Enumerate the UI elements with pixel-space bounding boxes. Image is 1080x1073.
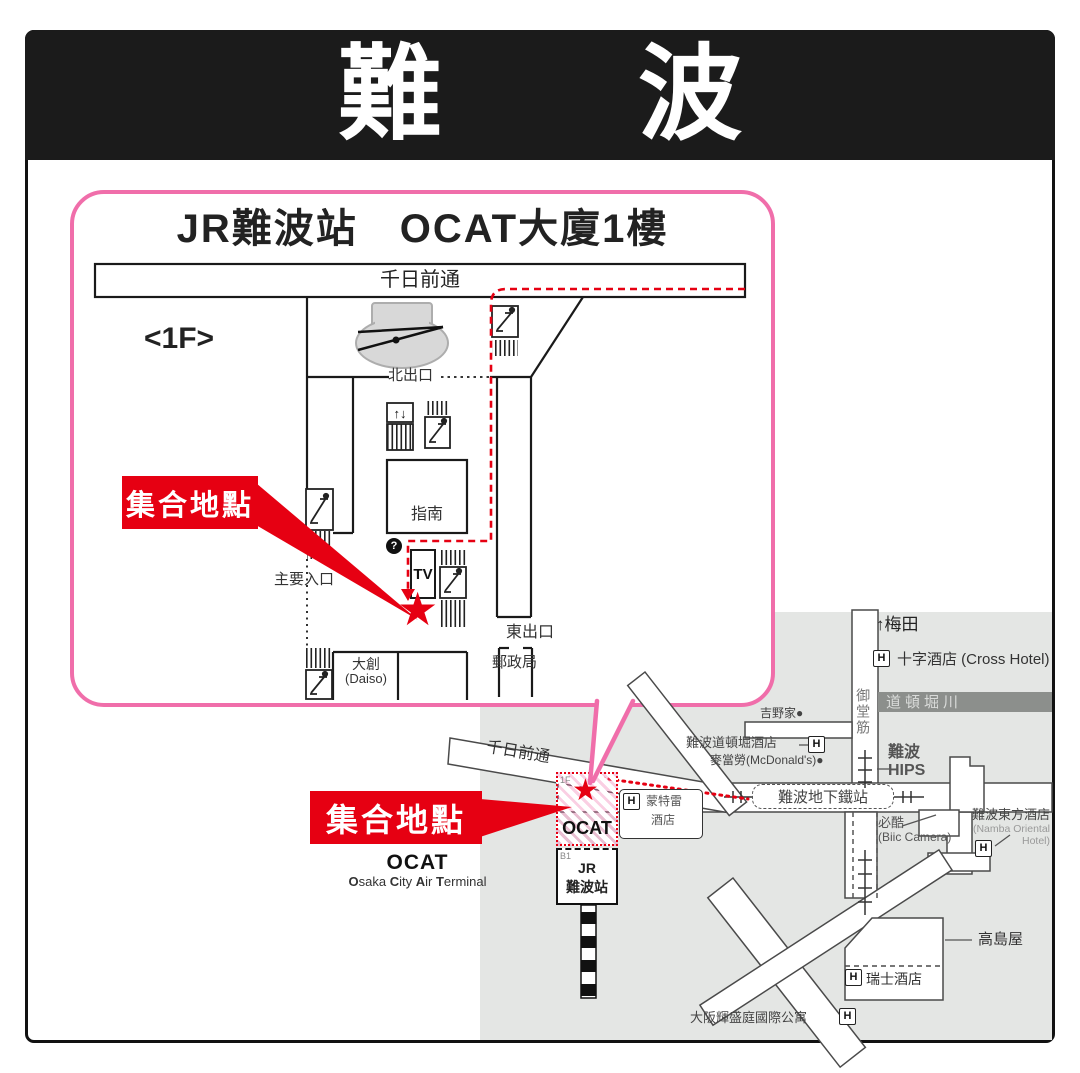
- meeting-point-banner-floorplan: 集合地點: [122, 476, 258, 529]
- north-exit-label: 北出口: [388, 367, 433, 384]
- ocat-en-part: O: [348, 874, 358, 889]
- ocat-caption-title: OCAT: [330, 851, 505, 875]
- ocat-en-part: T: [436, 874, 444, 889]
- takashimaya-label: 高島屋: [978, 931, 1023, 948]
- ocat-block-label: OCAT: [558, 818, 616, 839]
- jr-namba-station-box: B1 JR 難波站: [556, 848, 618, 905]
- meeting-point-star-icon: ★: [397, 586, 438, 632]
- dotonbori-river-label: 道頓堀川: [886, 694, 962, 711]
- ocat-caption: OCAT Osaka City Air Terminal: [330, 851, 505, 890]
- monterey-l1: 蒙特雷: [646, 795, 682, 809]
- daiso-label: 大創 (Daiso): [336, 656, 396, 687]
- tv-label: TV: [410, 566, 436, 583]
- ocat-en-part: erminal: [444, 874, 487, 889]
- jr-label-line2: 難波站: [558, 879, 616, 895]
- post-office-label: 郵政局: [492, 654, 537, 671]
- ocat-en-part: C: [390, 874, 399, 889]
- yoshinoya-label: 吉野家●: [760, 707, 803, 721]
- title-band: 難 波: [25, 30, 1055, 160]
- page-title-char-right: 波: [638, 43, 742, 147]
- meeting-point-banner-map: 集合地點: [310, 791, 482, 844]
- midosuji-street-label: 御堂筋: [855, 688, 871, 736]
- daiso-label-zh: 大創: [336, 656, 396, 672]
- cross-hotel-label: 十字酒店 (Cross Hotel): [897, 651, 1050, 668]
- namba-map-sheet: 難 波: [0, 0, 1080, 1073]
- oriental-zh: 難波東方酒店: [964, 808, 1050, 823]
- floorplan-title: JR難波站 OCAT大廈1樓: [90, 206, 755, 252]
- namba-hips-en: HIPS: [888, 762, 925, 780]
- namba-subway-station-label: 難波地下鐵站: [778, 786, 868, 807]
- street-label-sennichimae-dori: 千日前通: [95, 269, 745, 292]
- question-mark-icon: ?: [386, 538, 402, 554]
- monterey-l2: 酒店: [651, 814, 675, 828]
- hotel-icon-cross-hotel: H: [873, 650, 890, 667]
- east-exit-label: 東出口: [506, 624, 554, 642]
- hotel-icon-fraser: H: [839, 1008, 856, 1025]
- mcdonalds-label: 麥當勞(McDonald's)●: [710, 754, 824, 768]
- bic-camera-label: 必酷 (Biic Camera): [878, 816, 951, 845]
- main-entrance-label: 主要入口: [274, 571, 334, 588]
- hotel-icon-swissotel: H: [845, 969, 862, 986]
- namba-hips-zh: 難波: [888, 744, 925, 762]
- ocat-caption-en: Osaka City Air Terminal: [330, 875, 505, 890]
- bic-camera-en: (Biic Camera): [878, 831, 951, 845]
- hotel-icon-oriental: H: [975, 840, 992, 857]
- bic-camera-zh: 必酷: [878, 816, 951, 831]
- ocat-floor-tag: 1F: [560, 775, 571, 785]
- ocat-en-part: ity: [399, 874, 416, 889]
- hotel-icon-dotonbori-hotel: H: [808, 736, 825, 753]
- ocat-en-part: ir: [425, 874, 436, 889]
- fraser-residence-label: 大阪輝盛庭國際公寓: [690, 1011, 807, 1026]
- jr-label-line1: JR: [558, 860, 616, 876]
- floor-level-label: <1F>: [144, 322, 214, 357]
- umeda-direction-label: ↑梅田: [876, 615, 919, 635]
- meeting-point-star-icon-map: ★: [572, 776, 599, 806]
- hotel-icon-monterey: H: [623, 793, 640, 810]
- ocat-building-block: 1F ★ OCAT: [556, 772, 618, 846]
- daiso-label-en: (Daiso): [336, 672, 396, 687]
- page-title-char-left: 難: [338, 43, 442, 147]
- ocat-en-part: A: [416, 874, 425, 889]
- ocat-en-part: saka: [359, 874, 390, 889]
- namba-dotonbori-hotel-label: 難波道頓堀酒店: [686, 736, 777, 751]
- namba-hips-label: 難波 HIPS: [888, 744, 925, 781]
- namba-subway-station-box: 難波地下鐵站: [752, 784, 894, 809]
- swissotel-label: 瑞士酒店: [866, 971, 922, 987]
- monterey-hotel-box: H 蒙特雷 酒店: [619, 789, 703, 839]
- info-desk-label: 指南: [389, 506, 465, 524]
- oriental-en1: (Namba Oriental: [964, 823, 1050, 835]
